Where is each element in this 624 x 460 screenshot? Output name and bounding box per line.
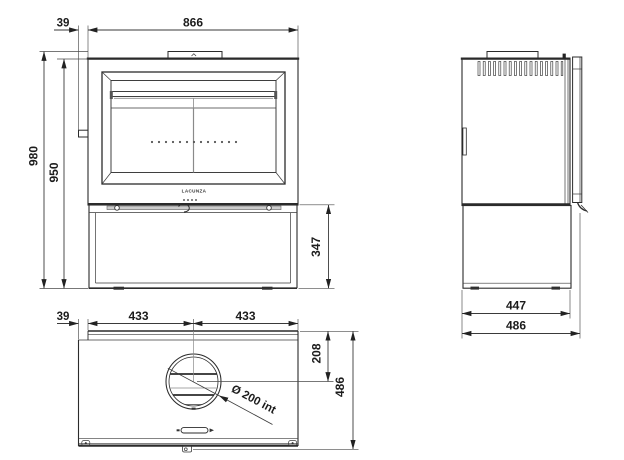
dim-height-body-label: 950 [47,162,61,182]
door-handle-side [573,57,588,213]
dim-depth-body-label: 447 [506,299,526,313]
side-view: 447 486 [461,52,588,339]
convection-vents [478,62,563,76]
dim-half-right-label: 433 [235,309,255,323]
hinge-screw-right [267,206,272,211]
foot-right [262,287,273,290]
flue-diameter-label: Ø 200 int [229,383,278,416]
top-latch [563,54,566,59]
side-view-dimensions: 447 486 [462,213,580,339]
technical-drawing-page: LACUNZA [0,0,624,460]
collar-notch [192,54,197,56]
top-plate [79,331,299,446]
dim-height-total-label: 980 [27,146,41,166]
hinge-screw-left [115,206,120,211]
dim-offset-front-label: 39 [57,17,70,29]
dim-offset-top-label: 39 [57,311,70,323]
front-view-dimensions: 39 866 980 950 347 [27,15,335,288]
stove-dimension-drawing: LACUNZA [0,0,624,460]
dim-depth-top-label: 486 [333,377,347,397]
top-view: Ø 200 int 39 433 433 208 486 [57,309,359,452]
brand-dots [183,199,197,201]
plinth-front [89,206,297,290]
door-handle-top [177,428,214,433]
foot-left [114,287,125,290]
stove-body-side [462,59,570,206]
side-handle-bracket [79,130,89,137]
rear-hinge-mark [463,128,466,155]
dim-width-label: 866 [183,15,203,29]
deflector-cap-right [274,91,277,99]
foot-front [552,287,561,290]
door-bottom-rail [107,206,281,210]
foot-back [471,287,480,290]
front-view: LACUNZA [27,15,335,289]
brand-logo: LACUNZA [182,189,207,194]
air-deflector-bar [112,92,276,97]
dim-base-height-label: 347 [309,236,323,256]
front-center-latch [183,446,192,452]
deflector-cap-left [110,91,113,99]
dim-depth-total-label: 486 [506,319,526,333]
dim-half-left-label: 433 [128,309,148,323]
plinth-side [463,206,571,290]
dim-flue-center-label: 208 [309,343,323,363]
air-holes-row [151,141,237,143]
